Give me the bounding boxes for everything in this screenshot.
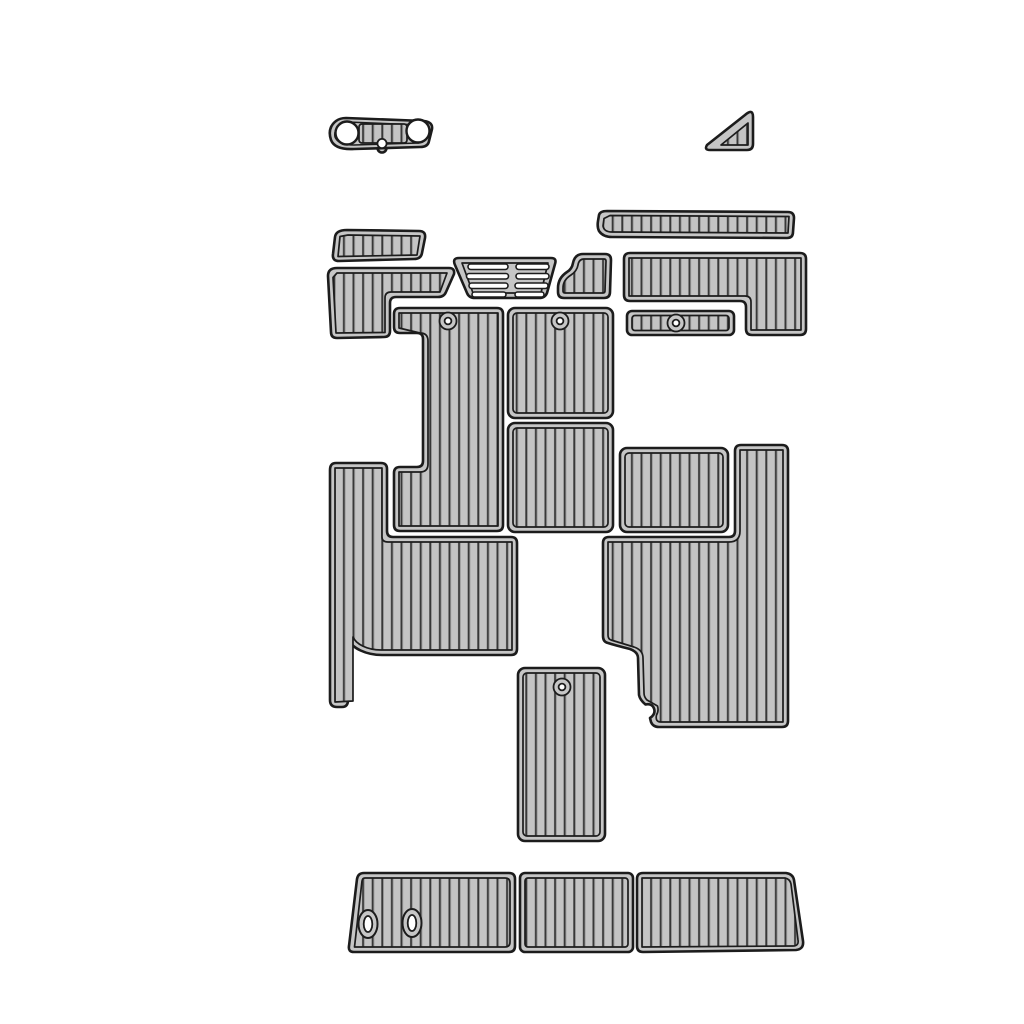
cockpit-left-tall-pad [394,308,503,531]
cockpit-center-top-pad [508,308,613,418]
swim-platform-pad-left [349,873,515,952]
cockpit-center-bottom-pad [508,423,613,532]
corner-triangle-pad [706,112,753,150]
swim-platform-pad-center [520,873,633,952]
swim-platform-pad-right [637,873,803,952]
boat-deck-pad-kit [0,0,1024,1024]
swim-platform-pads [349,873,803,952]
helm-dash-pad [330,118,432,153]
center-vent-step-pad [454,258,555,298]
fender-arch-pad [558,254,611,298]
product-image [0,0,1024,1024]
gunwale-top-strip-pad [598,211,794,238]
cockpit-right-mid-pad [620,448,728,532]
small-grommet-strip-pad [627,311,734,335]
engine-hatch-pad [518,668,605,841]
bow-left-small-pad [333,230,425,261]
